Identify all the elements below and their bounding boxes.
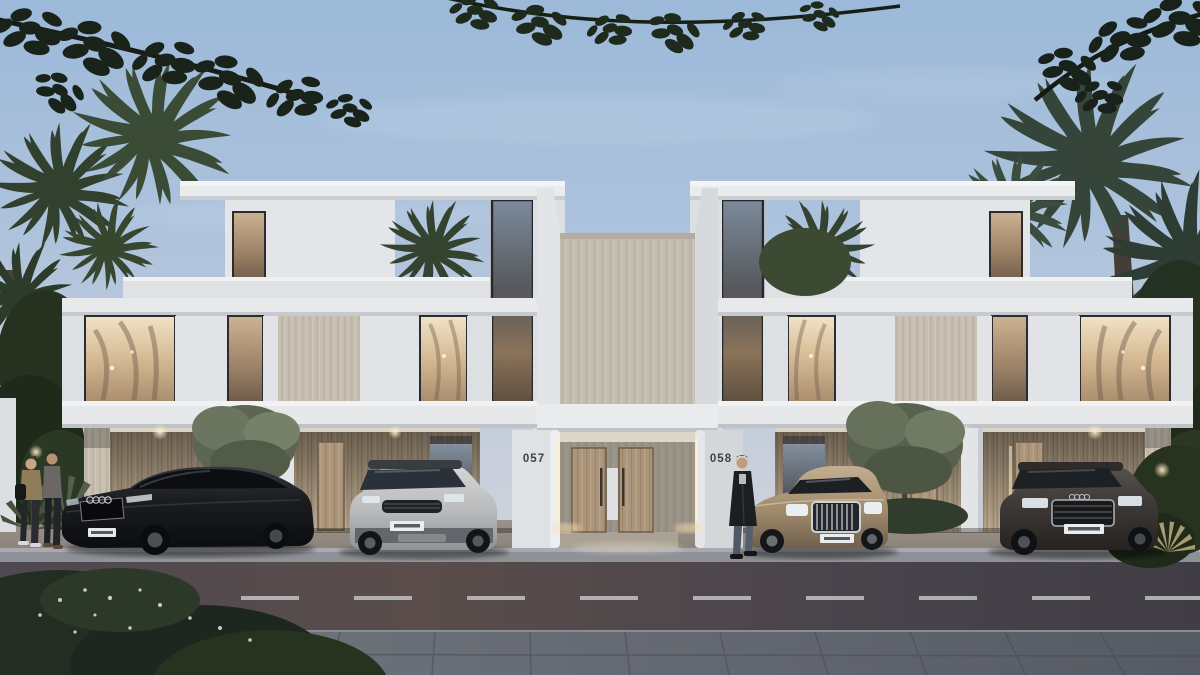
door-handle-left <box>600 468 603 506</box>
unit-number-right: 058 <box>710 453 732 465</box>
q7-grille <box>1052 500 1114 526</box>
led-strip-left <box>557 438 560 522</box>
maybach-grille <box>812 502 860 532</box>
door-handle-right <box>622 468 625 506</box>
central-entrance <box>512 188 743 554</box>
intercom-panel <box>607 468 618 520</box>
q7-headlight <box>1022 498 1048 508</box>
unit-number-left: 057 <box>523 453 545 465</box>
architectural-render-scene: 057 058 <box>0 0 1200 675</box>
terrace-tree-right <box>759 228 851 296</box>
entrance-pier-left <box>512 430 556 548</box>
maybach-headlight <box>786 504 808 516</box>
entrance-canopy <box>537 404 718 432</box>
suv-headlight <box>362 496 380 503</box>
led-strip-right <box>696 438 699 522</box>
travertine-tower <box>560 233 695 430</box>
